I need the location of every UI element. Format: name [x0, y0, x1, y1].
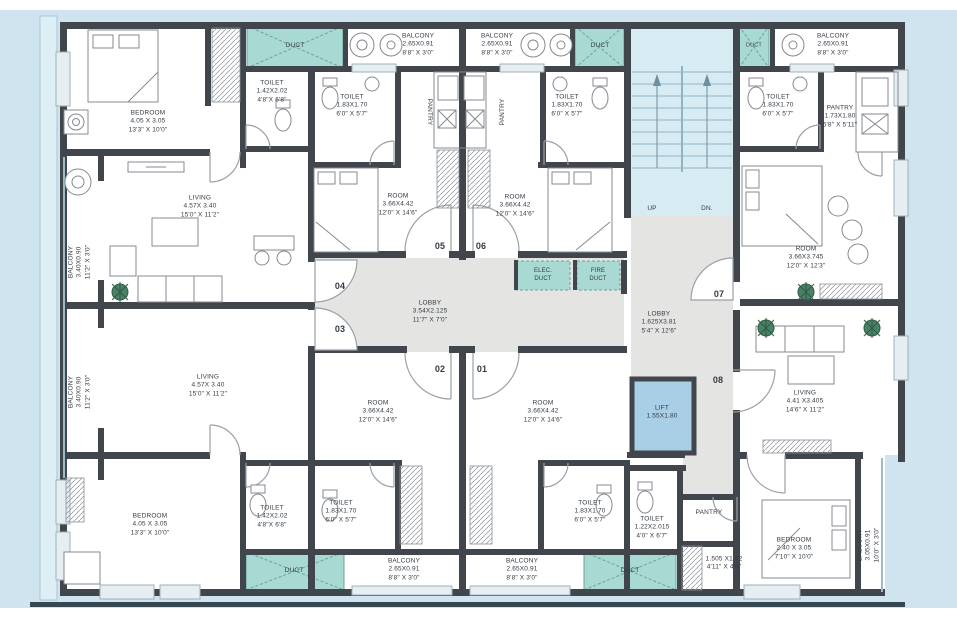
table-living-tl	[152, 218, 198, 246]
armchair-living-tl	[110, 246, 136, 276]
plot-boundary-line	[30, 602, 905, 607]
wardrobe-room-01	[470, 466, 492, 544]
side-table-bedroom-bl	[64, 552, 100, 584]
table-living-right	[788, 356, 834, 384]
round-fixture-icon	[65, 169, 91, 195]
wardrobe-bedroom-tl	[212, 28, 240, 102]
bed-bedroom-br	[762, 500, 850, 578]
lift-shaft	[632, 379, 694, 453]
wardrobe-room-06	[468, 150, 490, 208]
left-compound-strip	[40, 16, 57, 600]
tv-unit-living-tl	[128, 162, 184, 172]
wardrobe-bedroom-bl	[66, 478, 84, 522]
fire-duct-box	[577, 261, 620, 290]
bed-room-06	[548, 168, 612, 252]
duct-box-top-3	[739, 26, 769, 68]
wardrobe-room-02	[400, 466, 422, 544]
duct-box-top-1	[247, 26, 343, 68]
bed-room-05	[314, 168, 378, 252]
floor-plan-drawing	[0, 0, 957, 625]
bed-bedroom-tl	[88, 30, 158, 102]
duct-box-bottom-1	[246, 552, 344, 590]
elec-duct-box	[516, 261, 570, 290]
dresser-living-right	[763, 440, 831, 453]
dresser-room-tr	[820, 284, 882, 299]
washer-icon	[64, 110, 88, 134]
entry-passage-floor	[683, 457, 733, 497]
duct-box-top-2	[575, 26, 624, 68]
wardrobe-room-05	[437, 150, 459, 208]
bed-room-tr	[742, 166, 822, 246]
wardrobe-passage-br	[682, 546, 702, 590]
floor-plan: BEDROOM4.05 X 3.0513'3" X 10'0"DUCTBALCO…	[0, 0, 957, 625]
